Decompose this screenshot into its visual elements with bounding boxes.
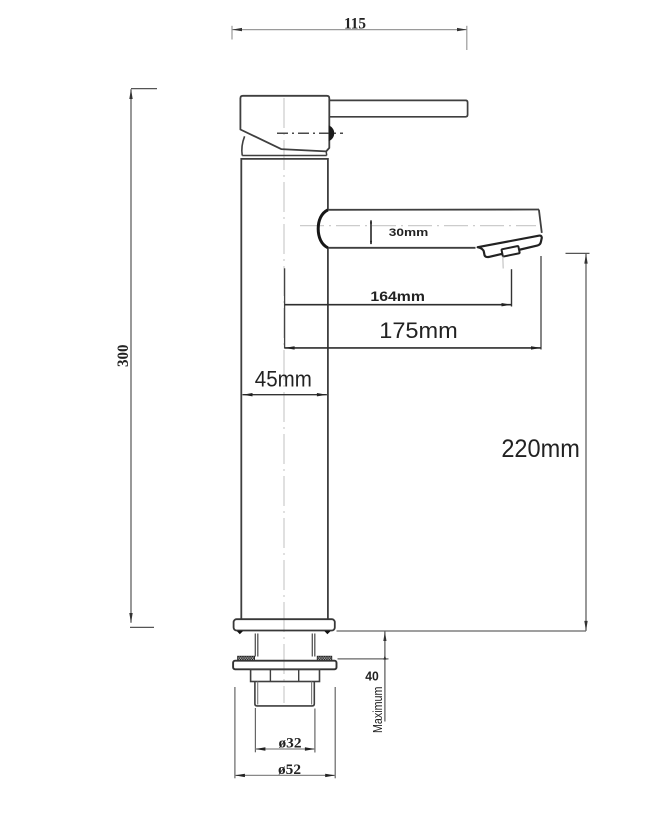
svg-text:164mm: 164mm — [370, 288, 425, 304]
svg-text:40: 40 — [365, 668, 379, 683]
svg-text:175mm: 175mm — [379, 318, 458, 343]
svg-text:ø52: ø52 — [278, 762, 301, 778]
svg-text:Maximum: Maximum — [371, 687, 385, 734]
svg-text:30mm: 30mm — [389, 227, 429, 239]
svg-text:45mm: 45mm — [255, 367, 312, 392]
svg-text:ø32: ø32 — [279, 736, 302, 752]
svg-text:220mm: 220mm — [501, 435, 580, 463]
svg-text:300: 300 — [115, 344, 132, 367]
svg-text:115: 115 — [344, 16, 366, 33]
